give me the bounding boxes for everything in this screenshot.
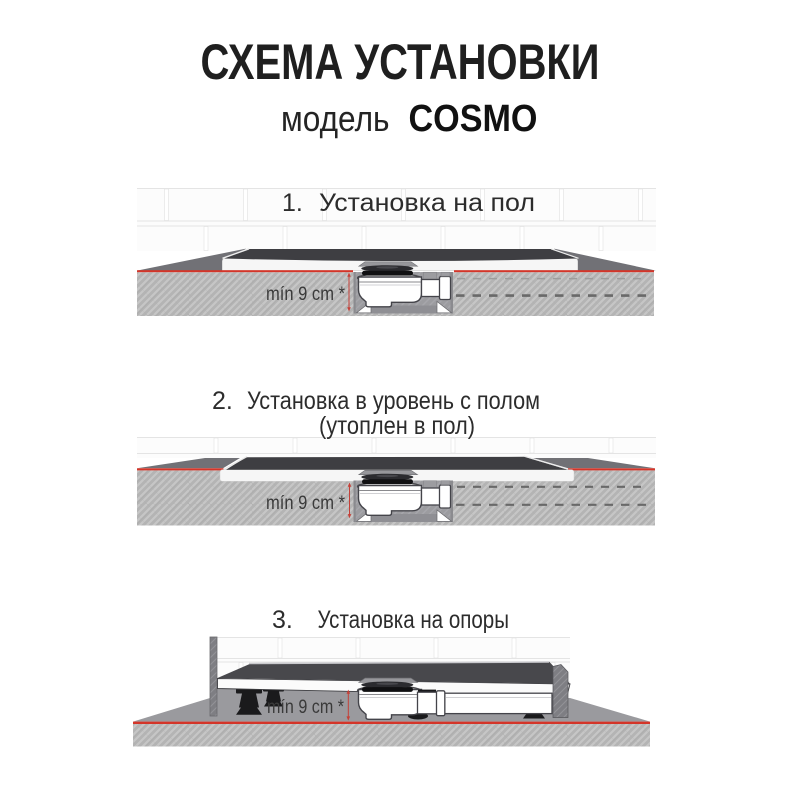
- svg-text:2.: 2.: [212, 387, 233, 415]
- svg-text:mín 9 cm *: mín 9 cm *: [267, 696, 344, 718]
- svg-text:COSMO: COSMO: [409, 98, 538, 140]
- svg-text:Установка на пол: Установка на пол: [319, 189, 535, 217]
- svg-text:Установка в уровень с полом: Установка в уровень с полом: [247, 387, 540, 415]
- svg-text:1.: 1.: [282, 189, 303, 217]
- svg-text:mín 9 cm *: mín 9 cm *: [266, 492, 345, 514]
- svg-text:Установка на опоры: Установка на опоры: [318, 606, 510, 634]
- svg-text:модель: модель: [281, 98, 390, 139]
- svg-text:(утоплен в пол): (утоплен в пол): [319, 412, 475, 440]
- svg-text:mín 9 cm *: mín 9 cm *: [266, 283, 345, 305]
- svg-text:СХЕМА УСТАНОВКИ: СХЕМА УСТАНОВКИ: [201, 34, 600, 90]
- svg-text:3.: 3.: [272, 606, 293, 634]
